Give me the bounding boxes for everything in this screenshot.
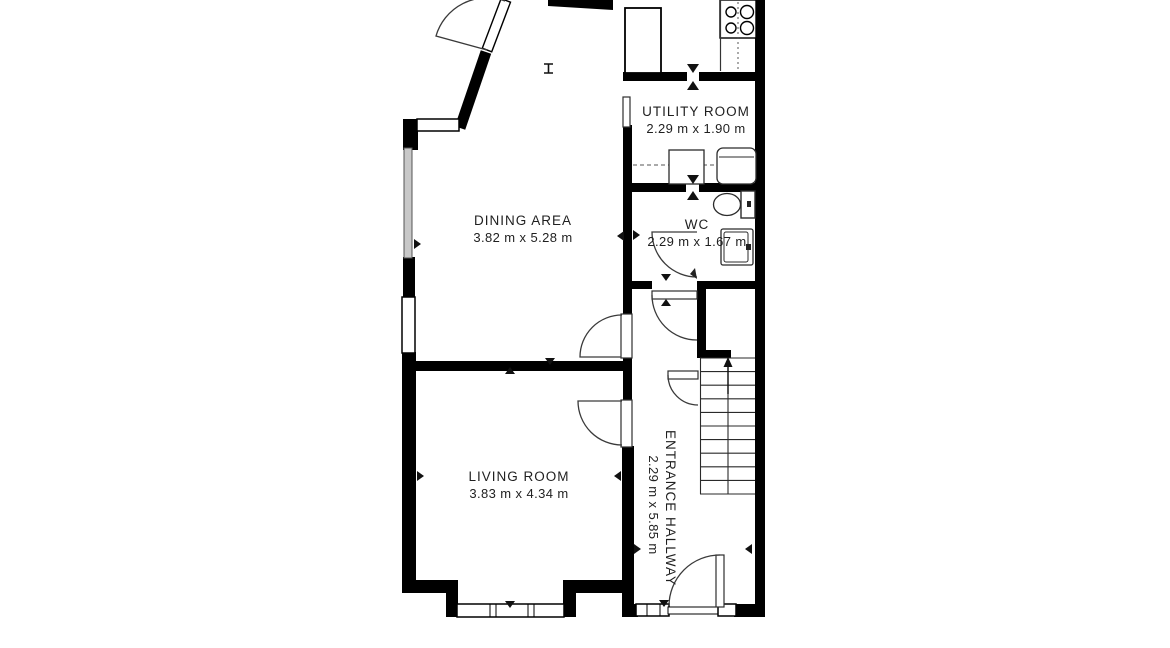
flush-button — [747, 201, 751, 207]
room-dimensions: 2.29 m x 5.85 m — [645, 430, 662, 580]
burner-icon — [741, 6, 754, 19]
door-swing-icon — [578, 401, 622, 445]
room-name: UTILITY ROOM — [601, 103, 791, 120]
staircase-icon — [700, 357, 755, 494]
door-swing-icon — [580, 315, 622, 357]
room-label-dining-area: DINING AREA 3.82 m x 5.28 m — [428, 212, 618, 246]
entrance-door-leaf — [716, 555, 724, 607]
understairs-door-leaf — [668, 371, 698, 379]
window-icon — [417, 119, 459, 131]
floor-plan-drawing — [0, 0, 1170, 648]
toilet-icon — [714, 194, 741, 216]
room-dimensions: 3.82 m x 5.28 m — [428, 229, 618, 246]
burner-icon — [741, 22, 754, 35]
i-beam-marker — [544, 64, 553, 73]
kitchen-cabinet-icon — [625, 8, 661, 73]
room-label-wc: WC 2.29 m x 1.67 m — [602, 216, 792, 250]
living-door-leaf — [621, 400, 632, 447]
room-dimensions: 2.29 m x 1.67 m — [602, 233, 792, 250]
washer-icon — [669, 150, 704, 184]
room-label-utility-room: UTILITY ROOM 2.29 m x 1.90 m — [601, 103, 791, 137]
narrow-window-icon — [404, 148, 412, 258]
room-name: DINING AREA — [428, 212, 618, 229]
room-dimensions: 3.83 m x 4.34 m — [424, 485, 614, 502]
dryer-icon — [717, 148, 756, 184]
floor-plan: UTILITY ROOM 2.29 m x 1.90 m WC 2.29 m x… — [0, 0, 1170, 648]
room-label-entrance-hallway: ENTRANCE HALLWAY 2.29 m x 5.85 m — [645, 430, 679, 580]
window-icon — [402, 297, 415, 353]
room-name: WC — [602, 216, 792, 233]
room-name: ENTRANCE HALLWAY — [662, 430, 679, 580]
threshold — [668, 607, 718, 614]
door-leaves — [482, 0, 724, 607]
burner-icon — [726, 23, 736, 33]
door-swing-icon — [652, 295, 697, 340]
diagonal-door-leaf — [482, 0, 510, 52]
wc-door-leaf — [652, 291, 697, 299]
room-dimensions: 2.29 m x 1.90 m — [601, 120, 791, 137]
top-wall-sliver — [548, 0, 613, 10]
dining-door-leaf — [621, 314, 632, 358]
room-name: LIVING ROOM — [424, 468, 614, 485]
burner-icon — [726, 7, 736, 17]
room-label-living-room: LIVING ROOM 3.83 m x 4.34 m — [424, 468, 614, 502]
diagonal-wall — [460, 52, 486, 128]
walls — [402, 0, 765, 617]
kitchen-fixtures — [625, 0, 756, 73]
